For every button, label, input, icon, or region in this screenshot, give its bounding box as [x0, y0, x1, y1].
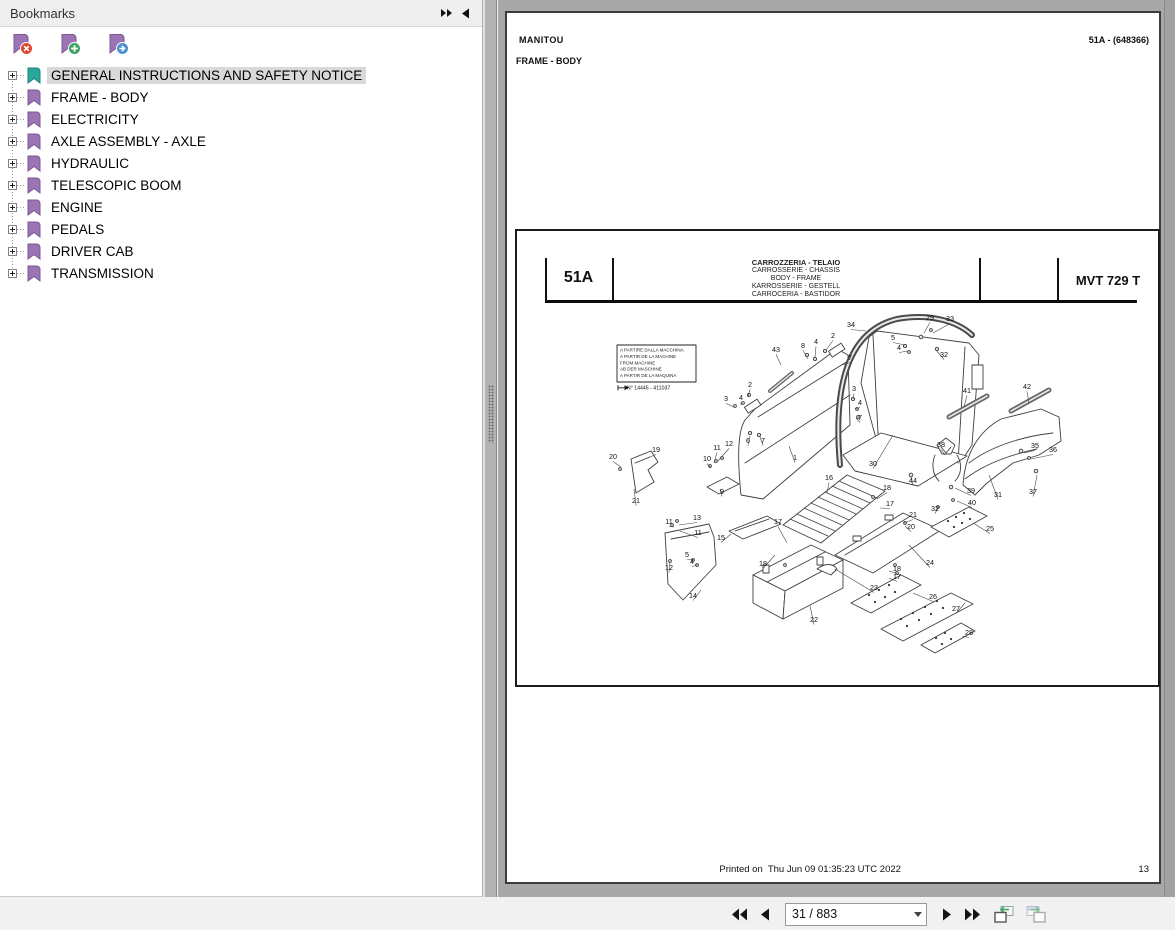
- grate-platform: [783, 475, 885, 543]
- part-callout: 24: [926, 558, 934, 567]
- diagram-frame: 51A CARROZZERIA - TELAIO CARROSSERIE - C…: [515, 229, 1160, 687]
- bookmark-item[interactable]: ELECTRICITY: [0, 108, 482, 130]
- next-page-icon[interactable]: [934, 901, 960, 927]
- part-callout: 4: [814, 337, 818, 346]
- callout-leader: [778, 527, 787, 544]
- part-callout: 17: [886, 499, 894, 508]
- bookmarks-panel-title: Bookmarks: [10, 6, 438, 21]
- part-callout: 42: [1023, 382, 1031, 391]
- part-callout: 4: [690, 557, 694, 566]
- part-callout: 11: [665, 517, 672, 526]
- callout-leader: [679, 523, 697, 526]
- previous-view-icon[interactable]: [990, 901, 1018, 927]
- callout-leader: [851, 330, 866, 332]
- first-page-icon[interactable]: [726, 901, 752, 927]
- expand-plus-icon[interactable]: [8, 181, 17, 190]
- bookmark-label[interactable]: ELECTRICITY: [47, 111, 143, 128]
- page-section: FRAME - BODY: [516, 56, 582, 66]
- part-callout: 31: [994, 490, 1002, 499]
- next-view-icon[interactable]: [1022, 901, 1050, 927]
- bookmark-next-icon[interactable]: [108, 33, 132, 57]
- part-callout: 41: [963, 386, 971, 395]
- part-callout: 36: [1049, 445, 1057, 454]
- part-callout: 38: [937, 440, 945, 449]
- part-callout: 16: [825, 473, 833, 482]
- bookmark-item[interactable]: TRANSMISSION: [0, 262, 482, 284]
- bookmarks-tree: GENERAL INSTRUCTIONS AND SAFETY NOTICEFR…: [0, 60, 482, 284]
- part-callout: 21: [632, 496, 640, 505]
- callout-leader: [613, 462, 621, 468]
- part-callout: 28: [965, 628, 973, 637]
- bookmarks-panel: Bookmarks: [0, 0, 483, 897]
- expand-plus-icon[interactable]: [8, 269, 17, 278]
- section-code: 51A: [545, 269, 612, 287]
- part-callout: 13: [693, 513, 701, 522]
- page-navigation-group: [726, 901, 1050, 927]
- part-callout: 37: [1029, 487, 1037, 496]
- printed-timestamp: Printed on Thu Jun 09 01:35:23 UTC 2022: [507, 864, 1113, 875]
- callout-leader: [880, 508, 890, 509]
- bookmark-flag-icon: [27, 221, 41, 238]
- tree-connector: [17, 163, 24, 164]
- part-callout: 3: [852, 384, 856, 393]
- part-callout: 10: [703, 454, 711, 463]
- bookmark-item[interactable]: GENERAL INSTRUCTIONS AND SAFETY NOTICE: [0, 64, 482, 86]
- bookmarks-toolbar: [0, 27, 482, 60]
- bookmark-item[interactable]: HYDRAULIC: [0, 152, 482, 174]
- part-callout: 23: [870, 583, 878, 592]
- chassis-box: [753, 545, 843, 619]
- part-callout: 25: [986, 524, 994, 533]
- callout-leader: [924, 323, 930, 334]
- bookmark-flag-icon: [27, 177, 41, 194]
- expand-plus-icon[interactable]: [8, 247, 17, 256]
- bookmark-flag-icon: [27, 155, 41, 172]
- bookmark-item[interactable]: TELESCOPIC BOOM: [0, 174, 482, 196]
- expand-plus-icon[interactable]: [8, 115, 17, 124]
- last-page-icon[interactable]: [960, 901, 986, 927]
- part-callout: 15: [717, 533, 725, 542]
- part-callout: 20: [907, 522, 915, 531]
- tree-connector: [17, 251, 24, 252]
- document-pane: MANITOU 51A - (648366) FRAME - BODY 51A …: [498, 0, 1175, 897]
- callout-leader: [933, 324, 950, 334]
- part-callout: 32: [940, 350, 948, 359]
- bookmark-add-icon[interactable]: [60, 33, 84, 57]
- bookmark-label[interactable]: PEDALS: [47, 221, 108, 238]
- serial-range: N° 14445 - 411037: [627, 386, 670, 392]
- part-callout: 3: [724, 394, 728, 403]
- bookmarks-panel-header: Bookmarks: [0, 0, 482, 27]
- note-line: FROM MACHINE: [620, 360, 655, 365]
- bookmark-flag-icon: [27, 67, 41, 84]
- part-callout: 18: [883, 483, 891, 492]
- bookmark-label[interactable]: TRANSMISSION: [47, 265, 158, 282]
- part-callout: 35: [1031, 441, 1039, 450]
- part-callout: 2: [748, 380, 752, 389]
- part-callout: 17: [893, 572, 901, 581]
- bookmark-item[interactable]: FRAME - BODY: [0, 86, 482, 108]
- part-callout: 11: [694, 528, 701, 537]
- diagram-title: CARROZZERIA - TELAIO CARROSSERIE - CHASS…: [613, 259, 979, 299]
- callout-leader: [776, 355, 781, 366]
- bookmark-label[interactable]: FRAME - BODY: [47, 89, 153, 106]
- chevron-down-icon[interactable]: [910, 912, 926, 917]
- part-callout: 14: [689, 591, 697, 600]
- bookmark-flag-icon: [27, 199, 41, 216]
- navigation-toolbar: [0, 897, 1175, 930]
- part-callout: 2: [831, 331, 835, 340]
- part-callout: 29: [926, 313, 934, 322]
- vertical-scrollbar[interactable]: [1164, 0, 1175, 897]
- bookmark-flag-icon: [27, 265, 41, 282]
- expand-plus-icon[interactable]: [8, 203, 17, 212]
- guard-panel: [963, 409, 1061, 495]
- bookmark-label[interactable]: ENGINE: [47, 199, 107, 216]
- part-callout: 40: [968, 498, 976, 507]
- bookmark-delete-icon[interactable]: [12, 33, 36, 57]
- bookmark-flag-icon: [27, 133, 41, 150]
- header-divider: [979, 258, 981, 300]
- part-callout: 44: [909, 476, 917, 485]
- bookmark-flag-icon: [27, 89, 41, 106]
- part-callout: 6: [746, 436, 750, 445]
- bookmark-label[interactable]: DRIVER CAB: [47, 243, 138, 260]
- note-line: A PARTIR DE LA MACHINE: [620, 354, 676, 359]
- model-code: MVT 729 T: [1057, 273, 1159, 288]
- tree-connector: [17, 273, 24, 274]
- part-callout: 34: [847, 320, 855, 329]
- callout-leader: [726, 404, 734, 408]
- part-callout: 7: [848, 353, 852, 362]
- page-brand: MANITOU: [519, 35, 564, 45]
- page-number: 13: [1138, 864, 1149, 875]
- bookmark-label[interactable]: TELESCOPIC BOOM: [47, 177, 186, 194]
- part-callout: 43: [772, 345, 780, 354]
- part-callout: 1: [793, 453, 797, 462]
- part-callout: 5: [685, 550, 689, 559]
- part-callout: 19: [652, 445, 660, 454]
- expand-plus-icon[interactable]: [8, 159, 17, 168]
- part-callout: 22: [810, 615, 818, 624]
- bookmark-label[interactable]: AXLE ASSEMBLY - AXLE: [47, 133, 210, 150]
- collapse-all-icon[interactable]: [438, 4, 456, 22]
- part-callout: 4: [897, 343, 901, 352]
- bookmark-item[interactable]: PEDALS: [0, 218, 482, 240]
- tree-connector: [17, 119, 24, 120]
- bookmark-label[interactable]: HYDRAULIC: [47, 155, 133, 172]
- bookmark-item[interactable]: DRIVER CAB: [0, 240, 482, 262]
- part-callout: 27: [952, 604, 960, 613]
- part-callout: 5: [891, 333, 895, 342]
- callout-leader: [815, 347, 816, 358]
- tree-connector: [17, 141, 24, 142]
- note-line: AB DER MASCHINE: [620, 367, 662, 372]
- blade-panel: [739, 343, 850, 499]
- part-callout: 30: [869, 459, 877, 468]
- page-number-input[interactable]: [786, 907, 910, 921]
- bookmark-flag-icon: [27, 111, 41, 128]
- bookmark-label[interactable]: GENERAL INSTRUCTIONS AND SAFETY NOTICE: [47, 67, 366, 84]
- part-callout: 32: [931, 504, 939, 513]
- splitter-grip[interactable]: [488, 385, 494, 443]
- page-number-combobox[interactable]: [785, 903, 927, 926]
- callout-leader: [669, 527, 674, 528]
- bookmark-item[interactable]: ENGINE: [0, 196, 482, 218]
- part-callout: 4: [858, 398, 862, 407]
- previous-page-icon[interactable]: [752, 901, 778, 927]
- tree-connector: [17, 229, 24, 230]
- bookmark-item[interactable]: AXLE ASSEMBLY - AXLE: [0, 130, 482, 152]
- part-callout: 12: [725, 439, 733, 448]
- part-callout: 8: [801, 341, 805, 350]
- part-callout: 9: [720, 487, 724, 496]
- part-callout: 18: [759, 559, 767, 568]
- pdf-page: MANITOU 51A - (648366) FRAME - BODY 51A …: [505, 11, 1161, 884]
- note-line: A PARTIR DE LA MAQUINA: [620, 373, 676, 378]
- expand-plus-icon[interactable]: [8, 71, 17, 80]
- part-callout: 4: [739, 393, 743, 402]
- tree-connector: [17, 185, 24, 186]
- expand-plus-icon[interactable]: [8, 225, 17, 234]
- tree-connector: [17, 207, 24, 208]
- tree-connector: [17, 97, 24, 98]
- page-reference: 51A - (648366): [1089, 35, 1149, 45]
- part-callout: 7: [858, 413, 862, 422]
- expand-plus-icon[interactable]: [8, 93, 17, 102]
- part-callout: 12: [665, 563, 673, 572]
- bookmark-flag-icon: [27, 243, 41, 260]
- part-callout: 21: [909, 510, 917, 519]
- part-callout: 39: [967, 486, 975, 495]
- expand-plus-icon[interactable]: [8, 137, 17, 146]
- part-callout: 17: [774, 517, 782, 526]
- tree-connector: [17, 75, 24, 76]
- part-callout: 11: [713, 443, 720, 452]
- note-line: A PARTIRE DALLA MACCHINA: [620, 348, 684, 353]
- panel-splitter[interactable]: [483, 0, 497, 897]
- part-callout: 20: [609, 452, 617, 461]
- part-callout: 33: [946, 314, 954, 323]
- app-window: { "colors": { "bookmark_purple": "#9b74b…: [0, 0, 1175, 930]
- part-callout: 7: [761, 436, 765, 445]
- dock-left-icon[interactable]: [456, 4, 474, 22]
- exploded-parts-diagram: A PARTIRE DALLA MACCHINAA PARTIR DE LA M…: [517, 303, 1162, 687]
- part-callout: 26: [929, 592, 937, 601]
